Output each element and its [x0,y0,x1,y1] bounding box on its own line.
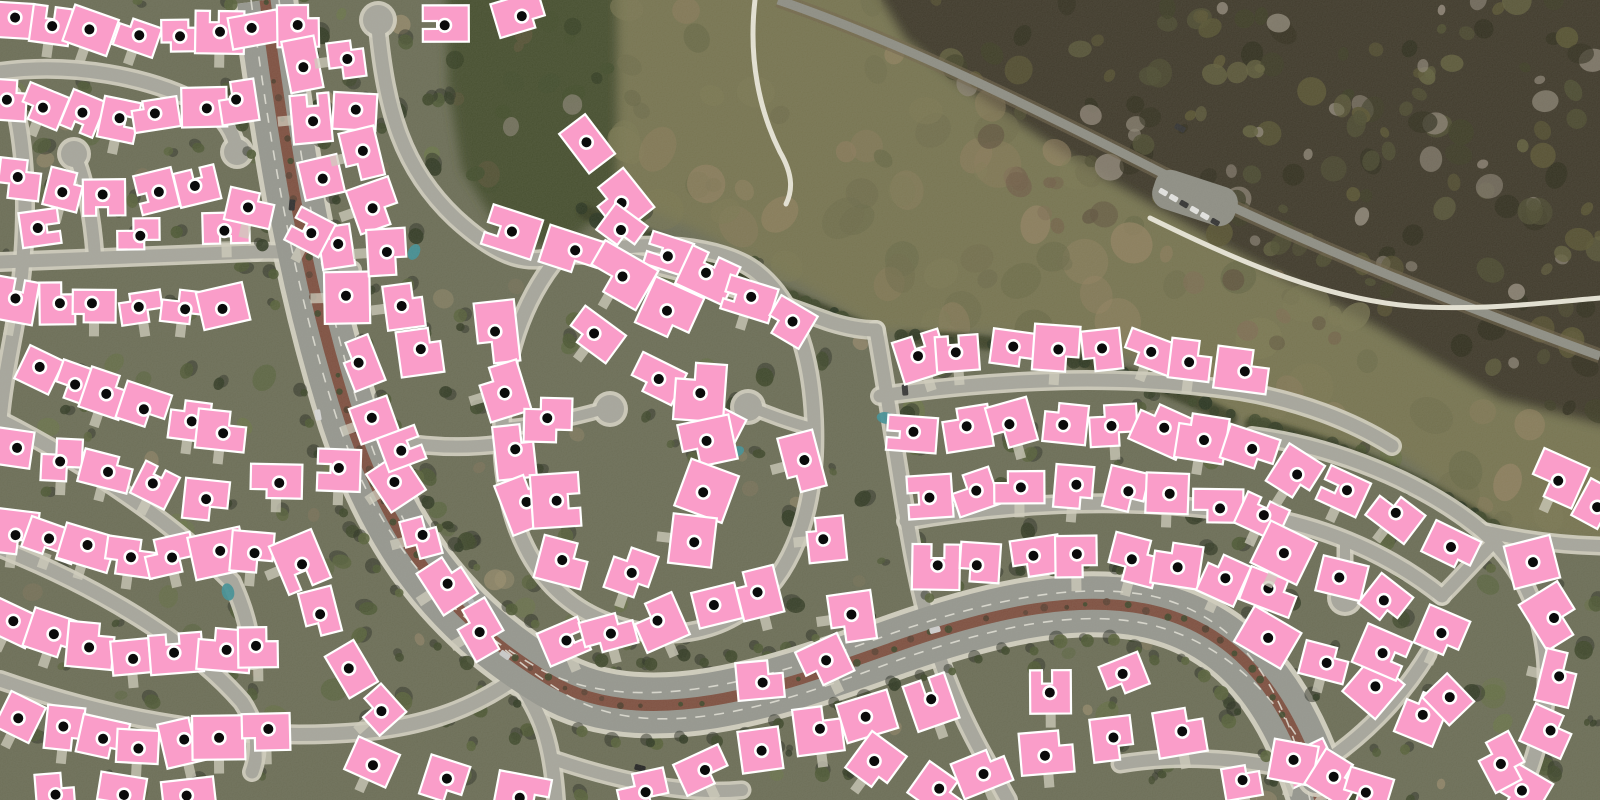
building-centroid-marker[interactable] [1175,724,1190,739]
building-centroid-marker[interactable] [56,720,70,734]
building-centroid-marker[interactable] [100,464,115,479]
building-centroid-marker[interactable] [86,297,99,310]
building-centroid-marker[interactable] [178,302,192,316]
building-centroid-marker[interactable] [213,731,226,744]
building-centroid-marker[interactable] [1332,570,1347,585]
building-centroid-marker[interactable] [82,641,96,655]
building-centroid-marker[interactable] [8,11,21,24]
building-centroid-marker[interactable] [54,297,67,310]
building-centroid-marker[interactable] [949,346,962,359]
building-centroid-marker[interactable] [45,19,59,33]
building-centroid-marker[interactable] [694,386,707,399]
building-centroid-marker[interactable] [395,299,409,313]
building-centroid-marker[interactable] [262,723,275,736]
building-centroid-marker[interactable] [1214,502,1227,515]
building-centroid-marker[interactable] [8,291,23,306]
building-centroid-marker[interactable] [11,170,25,184]
building-centroid-marker[interactable] [167,646,181,660]
building-centroid-marker[interactable] [164,550,179,565]
building-centroid-marker[interactable] [438,19,451,32]
building-centroid-marker[interactable] [1052,343,1065,356]
building-centroid-marker[interactable] [1095,341,1109,355]
building-centroid-marker[interactable] [1056,418,1070,432]
building-centroid-marker[interactable] [1006,339,1020,353]
building-centroid-marker[interactable] [248,546,262,560]
building-centroid-marker[interactable] [687,535,701,549]
building-centroid-marker[interactable] [1070,548,1083,561]
building-centroid-marker[interactable] [340,289,353,302]
building-centroid-marker[interactable] [296,60,311,75]
building-centroid-marker[interactable] [1026,549,1040,563]
building-centroid-marker[interactable] [970,559,983,572]
building-centroid-marker[interactable] [10,441,24,455]
building-annotation [737,726,783,773]
building-centroid-marker[interactable] [1070,478,1084,492]
building-centroid-marker[interactable] [148,106,162,120]
building-centroid-marker[interactable] [55,185,70,200]
building-centroid-marker[interactable] [220,643,234,657]
building-centroid-marker[interactable] [1043,686,1056,699]
building-centroid-marker[interactable] [1038,749,1052,763]
building-centroid-marker[interactable] [1121,484,1136,499]
building-centroid-marker[interactable] [1182,355,1196,369]
building-centroid-marker[interactable] [340,52,354,66]
building-centroid-marker[interactable] [124,550,138,564]
building-centroid-marker[interactable] [706,597,721,612]
building-centroid-marker[interactable] [214,25,227,38]
building-centroid-marker[interactable] [216,426,230,440]
building-centroid-marker[interactable] [54,455,67,468]
building-centroid-marker[interactable] [699,433,714,448]
building-centroid-marker[interactable] [1170,560,1184,574]
building-centroid-marker[interactable] [96,188,109,201]
aerial-imagery-viewport [0,0,1600,800]
building-centroid-marker[interactable] [151,184,166,199]
building-centroid-marker[interactable] [508,442,522,456]
building-centroid-marker[interactable] [756,676,770,690]
building-centroid-marker[interactable] [244,21,259,36]
building-annotation [0,427,35,468]
building-centroid-marker[interactable] [96,731,111,746]
building-centroid-marker[interactable] [306,114,320,128]
building-centroid-marker[interactable] [240,200,255,215]
building-centroid-marker[interactable] [132,742,145,755]
building-centroid-marker[interactable] [1235,773,1250,788]
building-centroid-marker[interactable] [134,229,147,242]
building-centroid-marker[interactable] [541,412,554,425]
building-centroid-marker[interactable] [1163,487,1176,500]
building-centroid-marker[interactable] [380,245,393,258]
building-centroid-marker[interactable] [414,342,428,356]
building-centroid-marker[interactable] [1105,419,1118,432]
building-centroid-marker[interactable] [755,744,769,758]
building-centroid-marker[interactable] [907,425,921,439]
building-centroid-marker[interactable] [816,532,830,546]
building-centroid-marker[interactable] [1106,731,1120,745]
building-centroid-marker[interactable] [31,221,45,235]
building-centroid-marker[interactable] [844,607,858,621]
building-centroid-marker[interactable] [49,788,63,800]
building-centroid-marker[interactable] [180,789,194,800]
building-centroid-marker[interactable] [250,639,263,652]
building-centroid-marker[interactable] [126,652,140,666]
building-centroid-marker[interactable] [177,732,192,747]
building-centroid-marker[interactable] [550,494,563,507]
building-centroid-marker[interactable] [112,111,127,126]
building-centroid-marker[interactable] [931,559,944,572]
building-centroid-marker[interactable] [218,224,231,237]
building-centroid-marker[interactable] [291,19,304,32]
building-centroid-marker[interactable] [1286,753,1301,768]
building-centroid-marker[interactable] [199,492,213,506]
building-centroid-marker[interactable] [229,92,243,106]
building-centroid-marker[interactable] [331,237,345,251]
building-centroid-marker[interactable] [923,491,936,504]
building-centroid-marker[interactable] [0,93,13,106]
building-centroid-marker[interactable] [959,419,973,433]
building-centroid-marker[interactable] [332,461,345,474]
building-centroid-marker[interactable] [349,103,362,116]
building-centroid-marker[interactable] [9,528,23,542]
building-centroid-marker[interactable] [174,30,187,43]
building-centroid-marker[interactable] [750,585,765,600]
building-centroid-marker[interactable] [1015,481,1028,494]
building-centroid-marker[interactable] [1552,669,1567,684]
building-centroid-marker[interactable] [315,171,330,186]
building-centroid-marker[interactable] [355,143,370,158]
building-centroid-marker[interactable] [1525,555,1540,570]
building-centroid-marker[interactable] [117,788,131,800]
building-centroid-marker[interactable] [273,477,286,490]
building-centroid-marker[interactable] [488,325,502,339]
building-centroid-marker[interactable] [187,178,202,193]
aerial-map-canvas[interactable] [0,0,1600,800]
building-centroid-marker[interactable] [1238,364,1252,378]
building-centroid-marker[interactable] [132,300,146,314]
building-centroid-marker[interactable] [200,102,213,115]
building-centroid-marker[interactable] [813,722,827,736]
building-centroid-marker[interactable] [638,785,653,800]
building-centroid-marker[interactable] [213,543,228,558]
building-centroid-marker[interactable] [1197,433,1211,447]
building-centroid-marker[interactable] [215,301,230,316]
building-centroid-marker[interactable] [312,607,327,622]
